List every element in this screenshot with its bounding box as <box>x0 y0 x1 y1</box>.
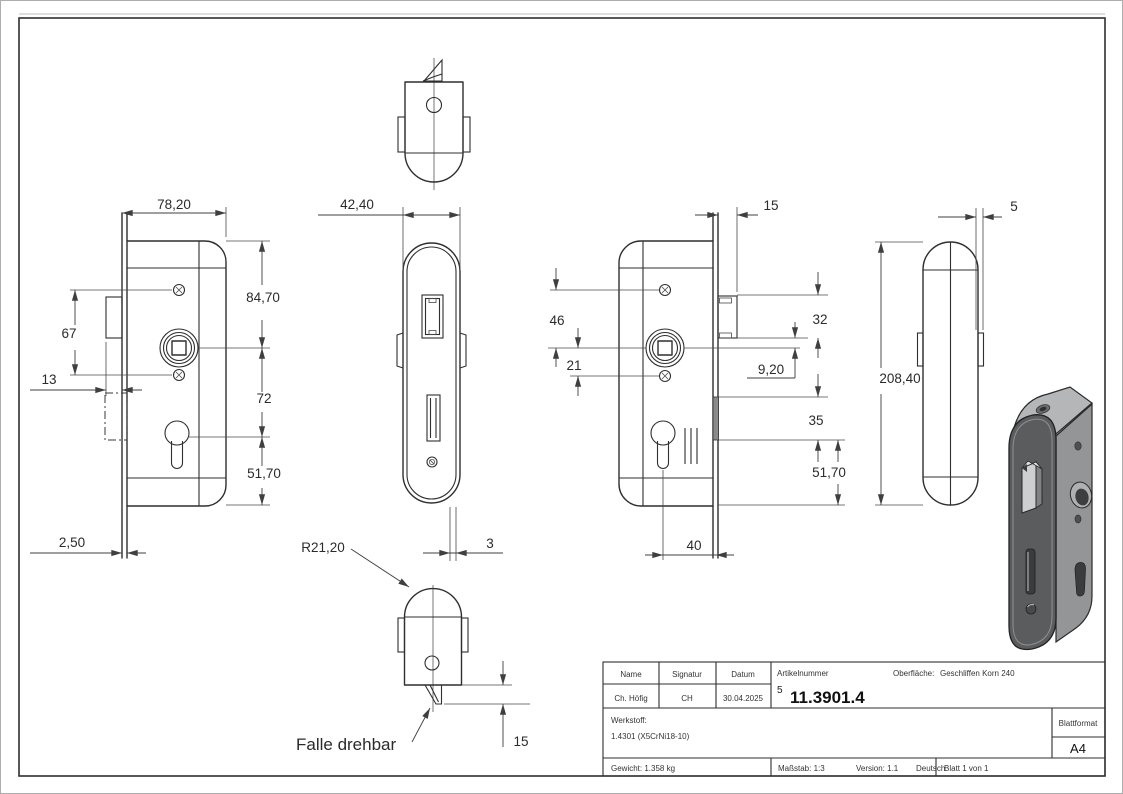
dim-plate-thickness: 5 <box>1010 199 1018 214</box>
tb-header-name: Name <box>620 670 642 679</box>
render-euro-keyhole <box>1075 562 1086 596</box>
render-side-hole-top <box>1075 442 1081 450</box>
dim-faceplate-thickness: 2,50 <box>59 535 85 550</box>
tb-header-blattformat: Blattformat <box>1059 719 1098 728</box>
drawing-sheet: 78,20 84,70 72 51,70 67 13 2,50 <box>0 0 1123 794</box>
tb-header-oberflaeche: Oberfläche: <box>893 669 934 678</box>
dim-cylinder-to-bottom: 51,70 <box>247 466 281 481</box>
dim-bolt-height: 35 <box>808 413 823 428</box>
dim-total-height: 208,40 <box>879 371 920 386</box>
dim-latch-projection: 15 <box>763 198 778 213</box>
render-latch <box>1022 461 1042 513</box>
iso-render <box>1009 387 1094 650</box>
dim-bolt-to-bottom: 51,70 <box>812 465 846 480</box>
dim-latch-to-spindle: 9,20 <box>758 362 784 377</box>
tb-value-oberflaeche: Geschliffen Korn 240 <box>940 669 1015 678</box>
dim-screw-spacing: 67 <box>61 326 76 341</box>
dim-body-width: 78,20 <box>157 197 191 212</box>
tb-artikelnummer-prefix: 5 <box>777 685 783 696</box>
tb-value-blattformat: A4 <box>1070 741 1086 756</box>
render-side-hole-bottom <box>1075 515 1081 523</box>
tb-value-signatur: CH <box>681 694 693 703</box>
dim-spindle-to-cylinder: 72 <box>256 391 271 406</box>
tb-header-signatur: Signatur <box>672 670 702 679</box>
tb-value-artikelnummer: 11.3901.4 <box>790 688 865 707</box>
dim-top-to-spindle: 84,70 <box>246 290 280 305</box>
render-bolt-slot <box>1026 549 1035 594</box>
dim-plate-edge: 3 <box>486 536 494 551</box>
tb-value-gewicht: Gewicht: 1.358 kg <box>611 764 675 773</box>
render-faceplate <box>1009 415 1056 650</box>
dim-latch-height: 32 <box>812 312 827 327</box>
tb-value-werkstoff: 1.4301 (X5CrNi18-10) <box>611 732 690 741</box>
dim-latch-projection-bottom: 15 <box>513 734 528 749</box>
tb-value-datum: 30.04.2025 <box>723 694 764 703</box>
dim-spindle-screw1: 46 <box>549 313 564 328</box>
tb-value-sprache: Deutsch <box>916 764 945 773</box>
tb-werkstoff-label: Werkstoff: <box>611 716 647 725</box>
dim-spindle-screw2: 21 <box>566 358 581 373</box>
tb-value-name: Ch. Höfig <box>614 694 647 703</box>
dim-faceplate-radius: R21,20 <box>301 540 345 555</box>
render-screw <box>1026 604 1036 614</box>
dim-latch-offset: 13 <box>41 372 56 387</box>
tb-header-artikelnummer: Artikelnummer <box>777 669 829 678</box>
tb-value-massstab: Maßstab: 1:3 <box>778 764 825 773</box>
label-falle-drehbar: Falle drehbar <box>296 735 397 754</box>
dim-backset: 40 <box>686 538 701 553</box>
deadbolt-edge <box>713 397 719 440</box>
dim-faceplate-width: 42,40 <box>340 197 374 212</box>
tb-header-datum: Datum <box>731 670 755 679</box>
tb-value-blatt: Blatt 1 von 1 <box>944 764 989 773</box>
tb-value-version: Version: 1.1 <box>856 764 899 773</box>
